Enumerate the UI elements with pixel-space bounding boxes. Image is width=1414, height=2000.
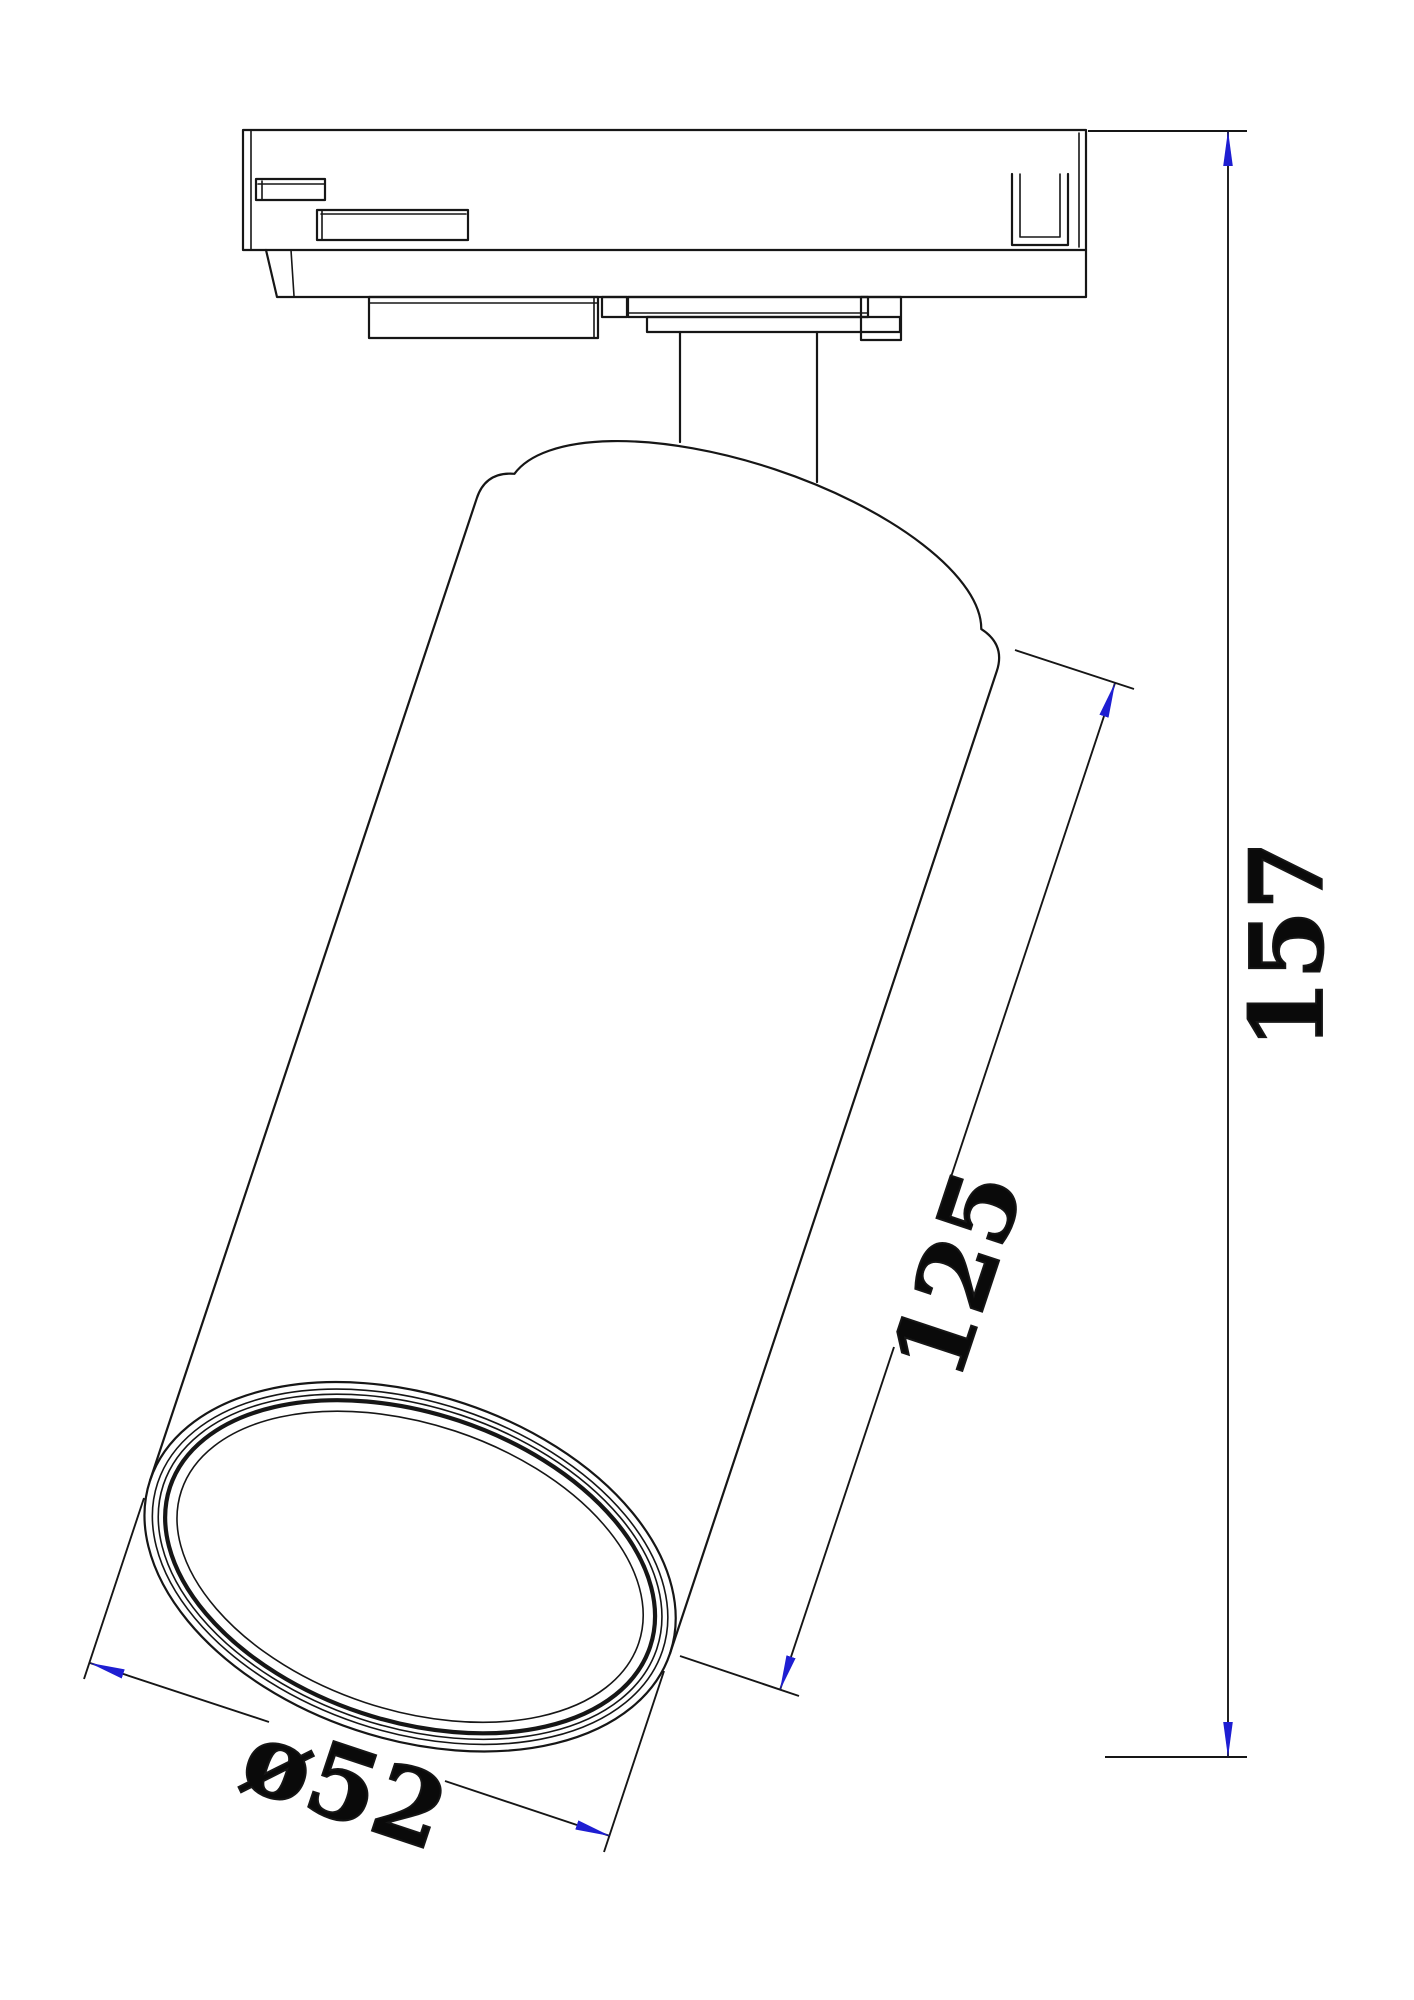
mounting-bracket <box>369 297 901 482</box>
dimension-125: 125 <box>680 650 1134 1696</box>
dimension-125-line-upper <box>951 683 1115 1177</box>
dimension-157: 157 <box>1088 131 1346 1757</box>
stem <box>680 332 817 482</box>
adapter-slot-2-inner-lines <box>321 211 466 239</box>
lens-outer-rim <box>96 1317 725 1816</box>
lens-dark-ring <box>121 1341 698 1793</box>
dimension-125-line-lower <box>780 1347 894 1690</box>
bracket-upper-plate <box>628 297 868 317</box>
lens-inner-ring <box>136 1355 684 1779</box>
technical-drawing-svg: 157 125 ø52 <box>0 0 1414 2000</box>
bracket-center-connector <box>602 297 627 317</box>
cylinder-silhouette <box>150 383 1035 1653</box>
lens-rim-ring-2 <box>106 1326 715 1807</box>
dimension-label-diameter-52: ø52 <box>229 1696 462 1873</box>
dimension-52-extension-left <box>84 1498 144 1679</box>
lens-face <box>96 1317 725 1816</box>
dimension-125-extension-bottom <box>680 1656 799 1696</box>
dimension-label-157: 157 <box>1228 841 1346 1050</box>
bracket-left-plate-inner-lines <box>369 297 598 338</box>
dimension-52-line-right <box>445 1781 610 1836</box>
adapter-lower-band-inner-edge <box>291 250 294 296</box>
dimension-125-extension-top <box>1015 650 1134 689</box>
cylinder-body <box>96 383 1035 1817</box>
adapter-lower-band <box>266 250 1086 297</box>
adapter-slot-1-inner-lines <box>258 181 324 199</box>
adapter-slot-1 <box>256 179 325 200</box>
adapter-u-clip-inner <box>1020 174 1060 237</box>
track-adapter <box>243 130 1086 297</box>
adapter-housing-outline <box>243 130 1086 250</box>
lens-rim-ring-3 <box>113 1333 707 1801</box>
dimension-label-125: 125 <box>869 1156 1047 1391</box>
drawing-canvas: 157 125 ø52 <box>0 0 1414 2000</box>
